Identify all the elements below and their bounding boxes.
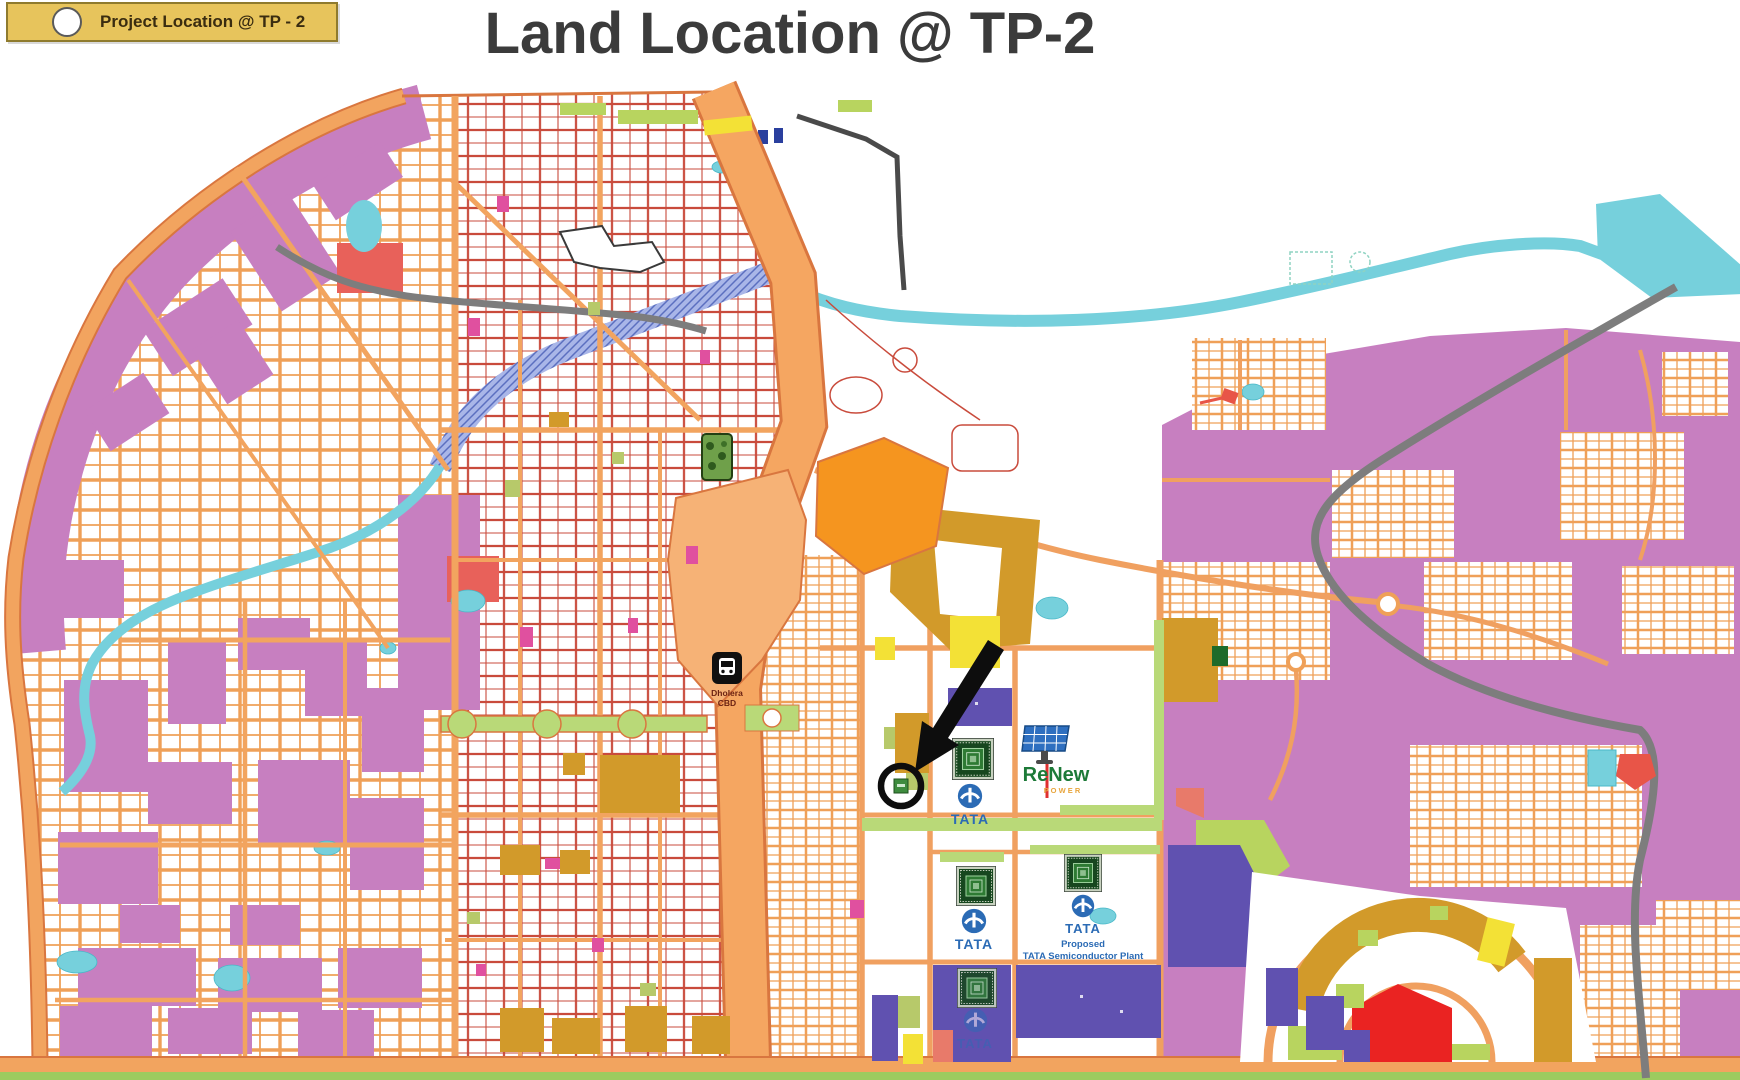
tata-wordmark: TATA bbox=[951, 811, 989, 827]
station-label-line1: Dholera bbox=[711, 688, 743, 698]
semiconductor-chip-icon bbox=[957, 968, 997, 1008]
renew-subtitle: P O W E R bbox=[1044, 786, 1081, 795]
proposed-plant-label-line1: Proposed bbox=[1061, 939, 1105, 950]
tata-wordmark: TATA bbox=[955, 936, 993, 952]
semiconductor-chip-icon bbox=[952, 738, 994, 780]
legend-marker-circle-icon bbox=[52, 7, 82, 37]
semiconductor-chip-icon bbox=[1064, 854, 1102, 892]
page-title: Land Location @ TP-2 bbox=[420, 0, 1160, 67]
lake-top-right bbox=[1596, 194, 1740, 298]
renew-wordmark: ReNew bbox=[1023, 764, 1090, 786]
semiconductor-chip-icon bbox=[956, 866, 996, 906]
station-label-line2: CBD bbox=[718, 698, 736, 708]
tata-wordmark: TATA bbox=[1065, 921, 1101, 936]
tata-wordmark: TATA bbox=[957, 1036, 993, 1051]
train-icon bbox=[712, 652, 742, 684]
project-location-legend: Project Location @ TP - 2 bbox=[6, 2, 338, 42]
map-canvas: Dholera CBD TATA TATA TATA Proposed TATA… bbox=[0, 0, 1740, 1080]
legend-label: Project Location @ TP - 2 bbox=[100, 12, 305, 32]
city-park-icon bbox=[702, 434, 732, 480]
river-top-right bbox=[795, 243, 1602, 320]
slide: Dholera CBD TATA TATA TATA Proposed TATA… bbox=[0, 0, 1740, 1080]
proposed-plant-label-line2: TATA Semiconductor Plant bbox=[1023, 951, 1144, 962]
